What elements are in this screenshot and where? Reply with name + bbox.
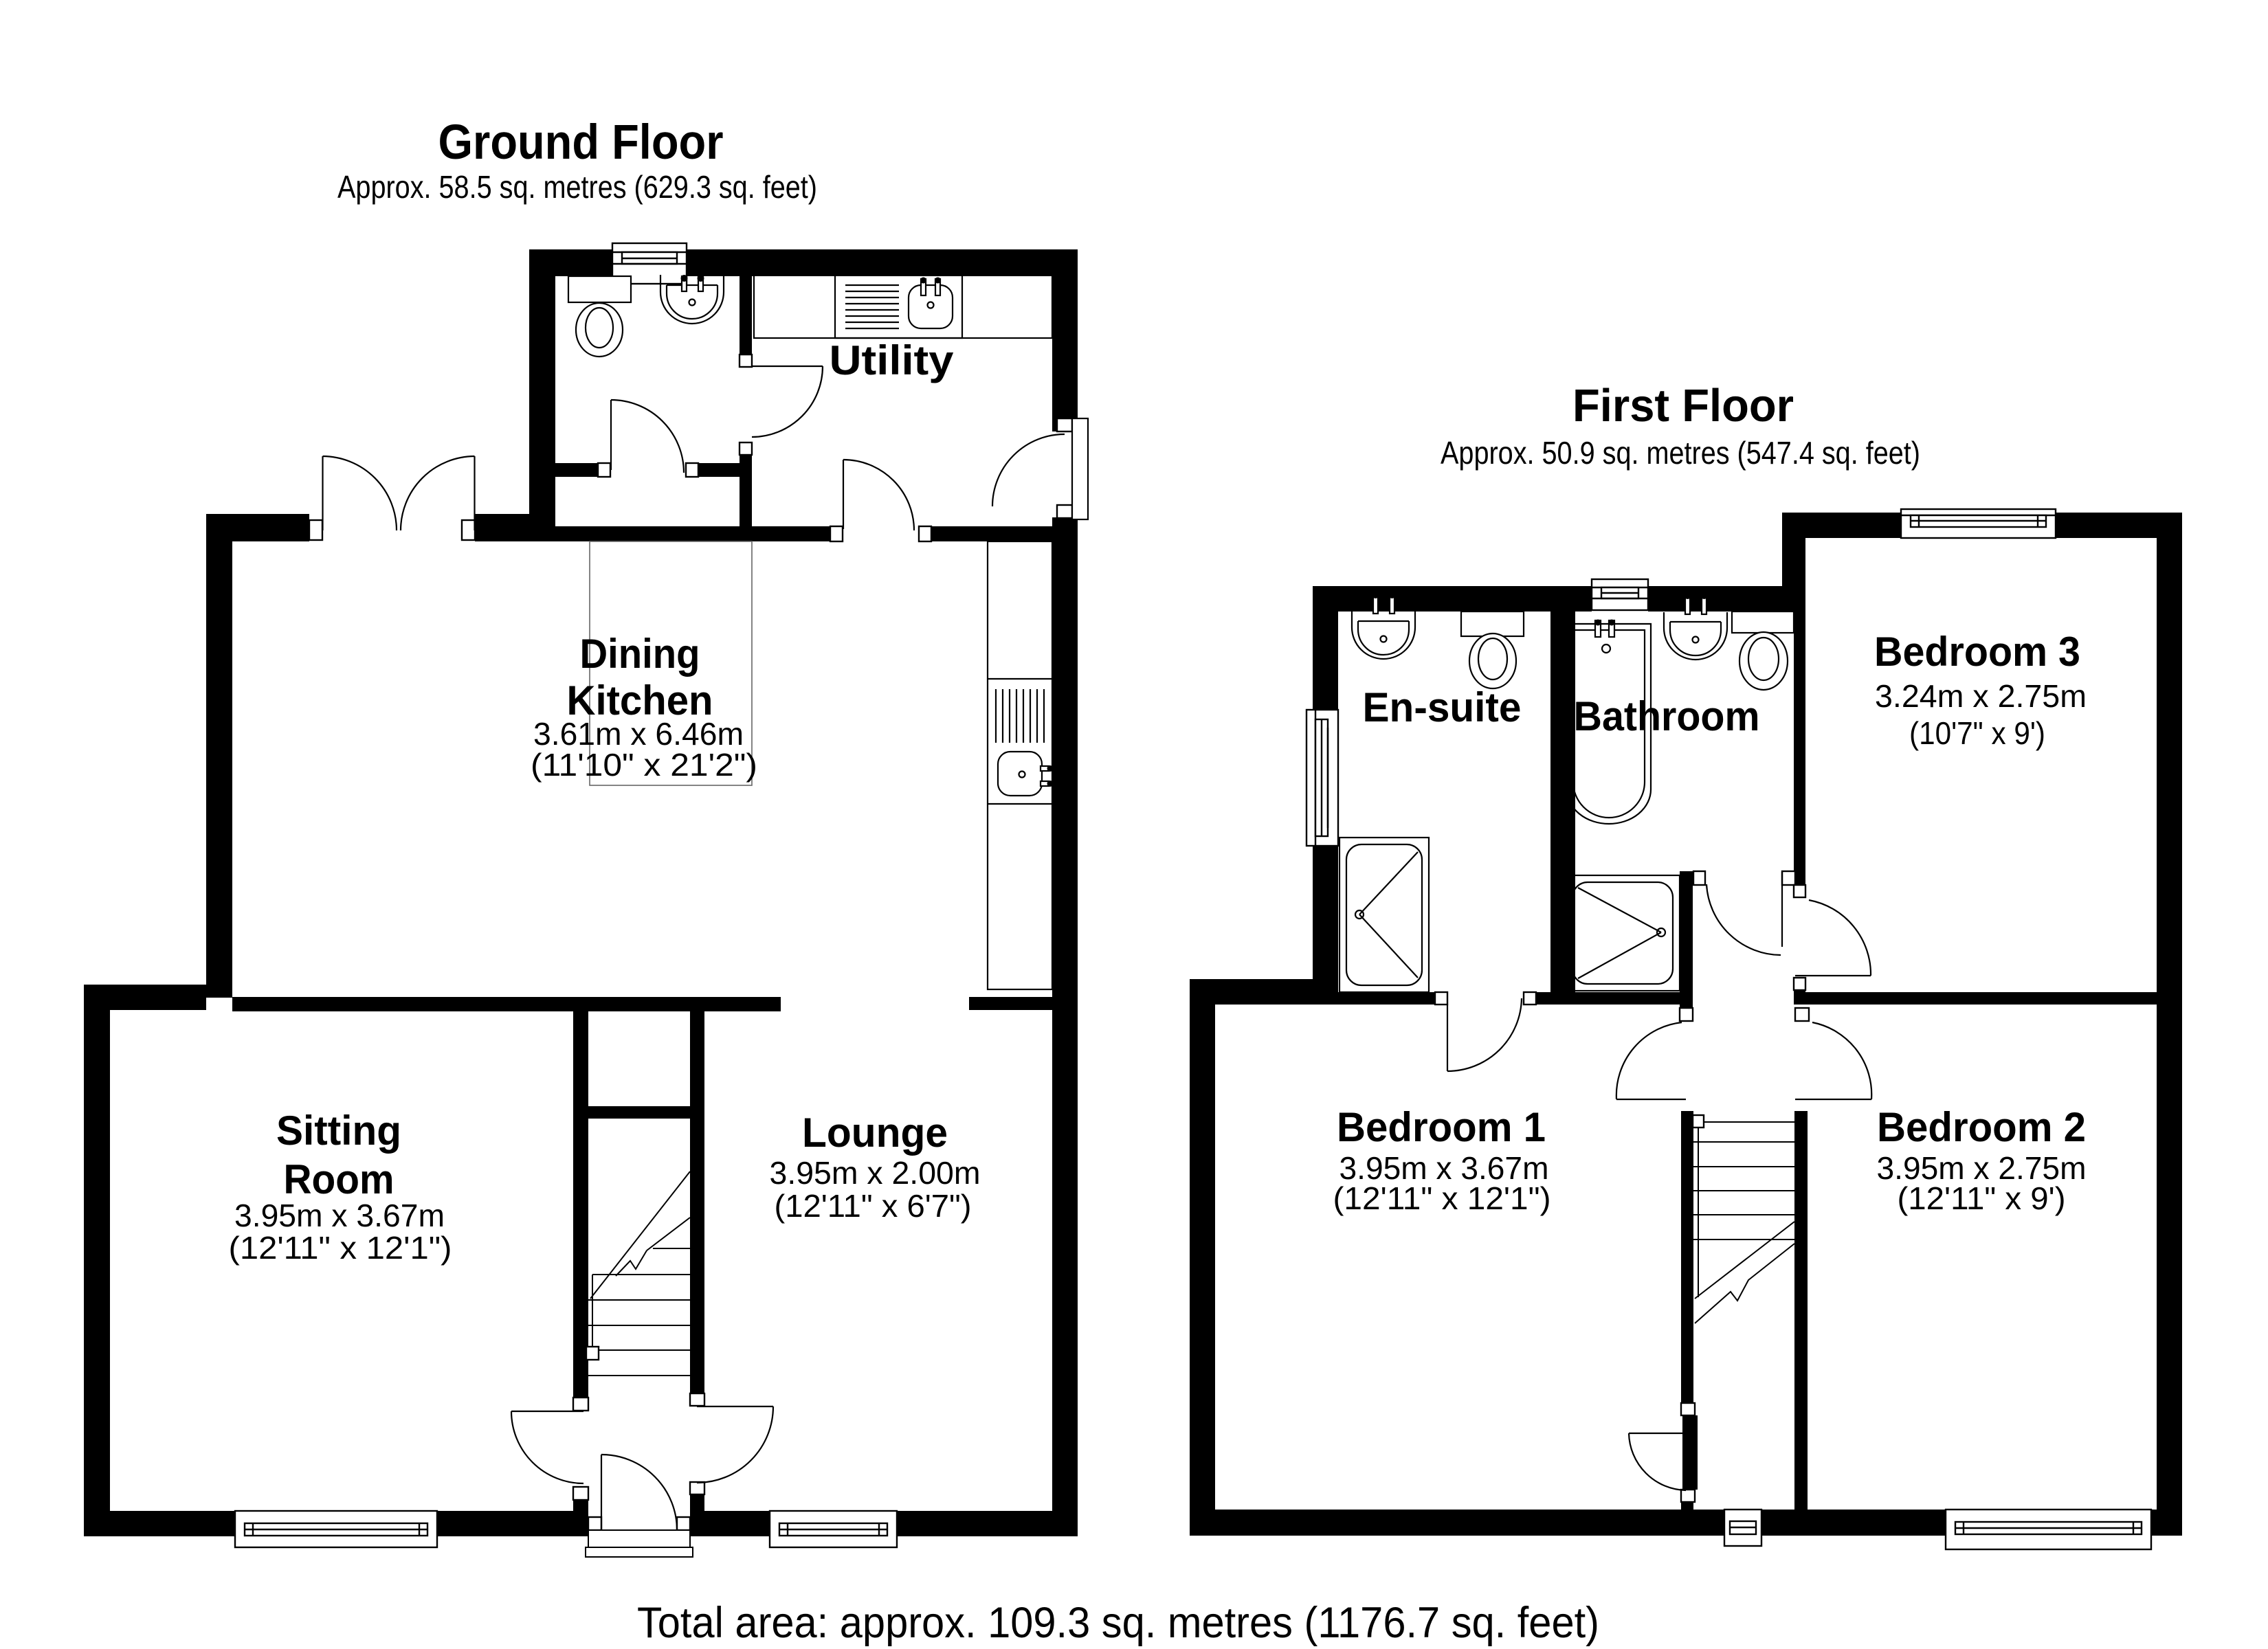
svg-text:Ground Floor: Ground Floor bbox=[438, 115, 724, 170]
svg-text:Lounge: Lounge bbox=[802, 1110, 948, 1156]
svg-text:Approx. 50.9 sq. metres (547.4: Approx. 50.9 sq. metres (547.4 sq. feet) bbox=[1441, 435, 1920, 471]
svg-text:Approx. 58.5 sq. metres (629.3: Approx. 58.5 sq. metres (629.3 sq. feet) bbox=[337, 169, 817, 205]
svg-text:Dining: Dining bbox=[580, 631, 700, 677]
svg-text:3.24m x 2.75m: 3.24m x 2.75m bbox=[1875, 678, 2087, 714]
svg-text:3.95m x 3.67m: 3.95m x 3.67m bbox=[234, 1198, 445, 1233]
svg-text:En-suite: En-suite bbox=[1363, 684, 1522, 730]
svg-text:Sitting: Sitting bbox=[276, 1108, 401, 1154]
svg-text:(12'11" x 12'1"): (12'11" x 12'1") bbox=[229, 1230, 452, 1266]
svg-text:Utility: Utility bbox=[830, 337, 955, 383]
svg-text:Total area: approx. 109.3 sq.: Total area: approx. 109.3 sq. metres (11… bbox=[637, 1599, 1599, 1647]
svg-text:Bathroom: Bathroom bbox=[1574, 693, 1760, 739]
svg-text:Room: Room bbox=[284, 1156, 394, 1202]
svg-text:(11'10" x 21'2"): (11'10" x 21'2") bbox=[531, 747, 757, 783]
svg-text:(10'7" x 9'): (10'7" x 9') bbox=[1909, 715, 2045, 751]
svg-text:Bedroom 2: Bedroom 2 bbox=[1877, 1104, 2086, 1150]
svg-text:3.95m x 2.00m: 3.95m x 2.00m bbox=[770, 1155, 981, 1191]
svg-text:(12'11" x 6'7"): (12'11" x 6'7") bbox=[775, 1188, 972, 1224]
svg-text:Bedroom 1: Bedroom 1 bbox=[1337, 1104, 1546, 1150]
svg-text:First Floor: First Floor bbox=[1572, 380, 1794, 431]
svg-text:Bedroom 3: Bedroom 3 bbox=[1874, 629, 2080, 675]
svg-text:(12'11" x 9'): (12'11" x 9') bbox=[1898, 1180, 2066, 1216]
svg-text:(12'11" x 12'1"): (12'11" x 12'1") bbox=[1333, 1180, 1551, 1216]
